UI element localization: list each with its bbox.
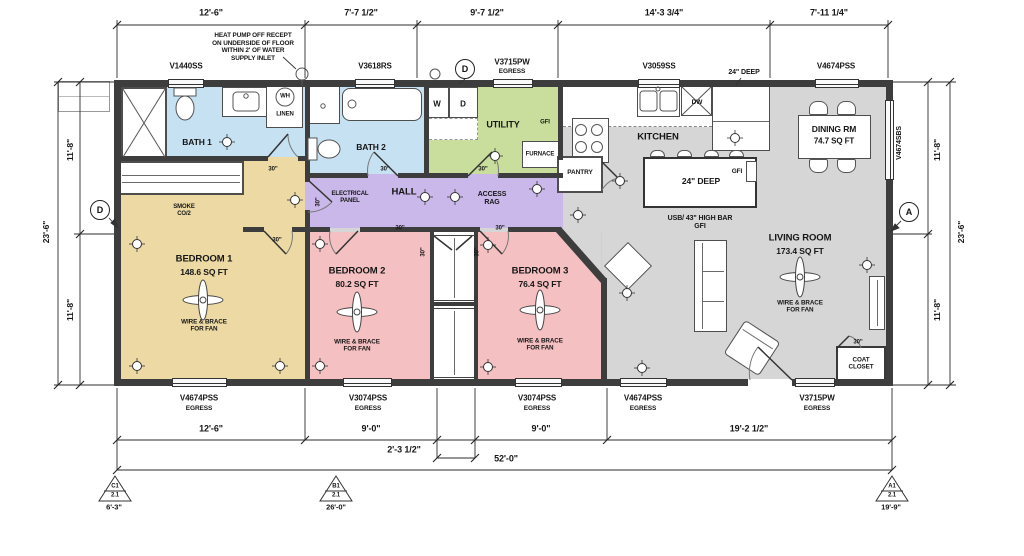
room-label-bedroom3: BEDROOM 3 [512,265,569,276]
access-note: ACCESS RAG [478,191,507,208]
wall-segment [558,84,563,160]
island-depth-note: 24" DEEP [682,176,720,186]
window-v3059ss [638,79,680,88]
door-width: 30" [380,166,389,173]
usb-bar-note: USB/ 43" HIGH BAR GFI [668,215,733,232]
window-label-v3059ss: V3059SS [642,61,675,70]
window-v1440ss [168,79,204,88]
gfi-utility: GFI [540,119,550,126]
dim-right-lower: 11'-8" [932,299,942,321]
washer-label: W [433,99,440,108]
window-v3074pss-bed2 [343,378,392,387]
section-offset: 19'-9" [881,504,901,513]
section-offset: 26'-0" [326,504,346,513]
window-egress: EGRESS [524,405,551,413]
window-label-v3618rs: V3618RS [358,61,392,70]
fan-note-bed2: WIRE & BRACE FOR FAN [334,339,380,354]
window-v3074pss-bed3 [515,378,562,387]
window-egress: EGRESS [630,405,657,413]
marker-d-left: D [90,200,110,220]
section-id: A1 [888,483,895,490]
room-area-dining: 74.7 SQ FT [814,136,854,145]
door-width: 30" [420,247,427,256]
window-v3715pw-living [795,378,835,387]
dim-left-total: 23'-6" [41,221,51,243]
wall-segment [292,227,330,232]
marker-d-label: D [97,205,104,215]
dim-bottom-1: 12'-6" [199,424,223,435]
vanity-bath1 [222,87,268,117]
dim-top-3: 9'-7 1/2" [470,8,504,19]
window-egress: EGRESS [499,68,526,76]
section-offset: 6'-3" [106,504,122,513]
room-label-kitchen: KITCHEN [637,131,679,142]
bar-stool [704,150,719,157]
window-v3715pw-top [493,79,533,88]
wall-segment [305,84,310,160]
section-markers [99,476,908,501]
room-label-utility: UTILITY [486,120,519,131]
wall-segment [601,278,607,380]
window-label-bottom-2: V3074PSS [349,393,387,402]
room-label-bath1: BATH 1 [182,137,211,147]
window-egress: EGRESS [186,405,213,413]
smoke-detector-note: SMOKE CO/2 [173,204,195,218]
room-label-bath2: BATH 2 [356,142,385,152]
furnace-label: FURNACE [526,151,555,158]
wall-segment [424,84,429,178]
exterior-heat-pump-pad [58,81,110,112]
section-sheet: 2.1 [888,492,896,499]
window-label-bottom-3: V3074PSS [518,393,556,402]
door-width: 30" [272,237,281,244]
wall-segment [305,159,310,182]
water-heater-label: WH [280,93,290,100]
section-sheet: 2.1 [111,492,119,499]
wall-segment [508,227,560,232]
island-gfi-outlet [746,161,757,182]
sofa [694,240,727,332]
room-label-bedroom2: BEDROOM 2 [329,265,386,276]
media-console [869,276,885,330]
floor-plan: 12'-6" 7'-7 1/2" 9'-7 1/2" 14'-3 3/4" 7'… [0,0,1024,556]
room-area-bedroom1: 148.6 SQ FT [180,267,228,277]
room-label-bedroom1: BEDROOM 1 [176,253,233,264]
window-v4674sbs [885,100,894,180]
fan-note-bed1: WIRE & BRACE FOR FAN [181,319,227,334]
window-label-v1440ss: V1440SS [169,61,202,70]
room-label-dining: DINING RM [812,124,856,134]
window-egress: EGRESS [355,405,382,413]
door-width: 30" [853,339,862,346]
upper-closets [432,235,476,301]
electrical-panel-note: ELECTRICAL PANEL [332,191,369,205]
dim-bottom-2: 9'-0" [362,424,381,435]
wall-segment [498,173,563,178]
window-label-v4674pss: V4674PSS [817,61,855,70]
door-width: 30" [474,247,481,256]
door-width: 30" [495,225,504,232]
window-egress: EGRESS [804,405,831,413]
door-width: 30" [315,197,322,206]
bedroom1-closet [118,161,244,195]
dim-left-upper: 11'-8" [65,139,75,161]
window-v4674pss-bed1 [172,378,227,387]
dining-chair [837,159,856,173]
window-v4674pss-top [815,79,859,88]
dim-bottom-4: 19'-2 1/2" [730,424,768,435]
window-v4674pss-living [620,378,667,387]
dim-right-upper: 11'-8" [932,139,942,161]
laundry-outline [424,118,478,140]
shower-bath1 [121,87,167,159]
fridge-counter-24deep [712,86,770,151]
window-label-bottom-1: V4674PSS [180,393,218,402]
marker-a-label: A [906,207,913,217]
dining-chair [809,159,828,173]
window-label-bottom-5: V3715PW [799,393,834,402]
front-door-opening [748,379,792,387]
bar-stool [650,150,665,157]
coat-closet-label: COAT CLOSET [849,357,874,372]
room-area-bedroom3: 76.4 SQ FT [519,279,562,289]
wall-segment [114,80,121,386]
gfi-island: GFI [732,168,743,176]
fan-note-living: WIRE & BRACE FOR FAN [777,300,823,315]
dim-top-5: 7'-11 1/4" [810,8,848,19]
room-label-hall: HALL [392,186,417,197]
heat-pump-note: HEAT PUMP OFF RECEPT ON UNDERSIDE OF FLO… [212,32,294,62]
wall-segment [305,232,310,380]
linen-cabinet [266,86,303,128]
door-width: 30" [478,166,487,173]
room-label-living: LIVING ROOM [769,232,832,243]
dim-bottom-offset: 2'-3 1/2" [387,445,421,456]
bedroom2-area [305,232,430,380]
room-label-pantry: PANTRY [567,169,592,177]
dining-chair [809,101,828,115]
window-label-v3715pw: V3715PW [494,57,529,66]
room-area-living: 173.4 SQ FT [776,246,824,256]
wall-segment [430,232,434,380]
lower-closets [432,308,476,378]
kitchen-sink-counter [637,87,680,117]
section-sheet: 2.1 [332,492,340,499]
bar-stool [729,150,744,157]
wall-segment [305,173,368,178]
wall-segment [114,156,268,161]
dishwasher-label: DW [692,99,703,107]
marker-a-right: A [899,202,919,222]
door-width: 30" [268,166,277,173]
shower-bath2 [307,86,340,124]
window-label-v4674sbs: V4674SBS [896,126,904,160]
dim-right-total: 23'-6" [956,221,966,243]
section-id: C1 [111,483,118,490]
dryer-label: D [460,99,466,108]
marker-d-label: D [462,64,469,74]
wall-segment [398,173,468,178]
bedroom3-area [478,232,602,380]
wall-segment [430,302,478,306]
bathtub [342,88,422,121]
dim-left-lower: 11'-8" [65,299,75,321]
window-v3618rs [355,79,395,88]
room-area-bedroom2: 80.2 SQ FT [336,279,379,289]
wall-segment [243,227,264,232]
dim-bottom-total: 52'-0" [494,454,518,465]
dim-top-2: 7'-7 1/2" [344,8,378,19]
window-label-bottom-4: V4674PSS [624,393,662,402]
dim-top-4: 14'-3 3/4" [645,8,683,19]
bar-stool [677,150,692,157]
counter-depth-note: 24" DEEP [728,69,759,77]
dim-bottom-3: 9'-0" [532,424,551,435]
marker-d-top: D [455,59,475,79]
door-width: 30" [395,225,404,232]
dim-top-1: 12'-6" [199,8,223,19]
dining-chair [837,101,856,115]
wall-segment [360,227,480,232]
section-id: B1 [332,483,339,490]
fan-note-bed3: WIRE & BRACE FOR FAN [517,338,563,353]
linen-label: LINEN [276,111,294,118]
